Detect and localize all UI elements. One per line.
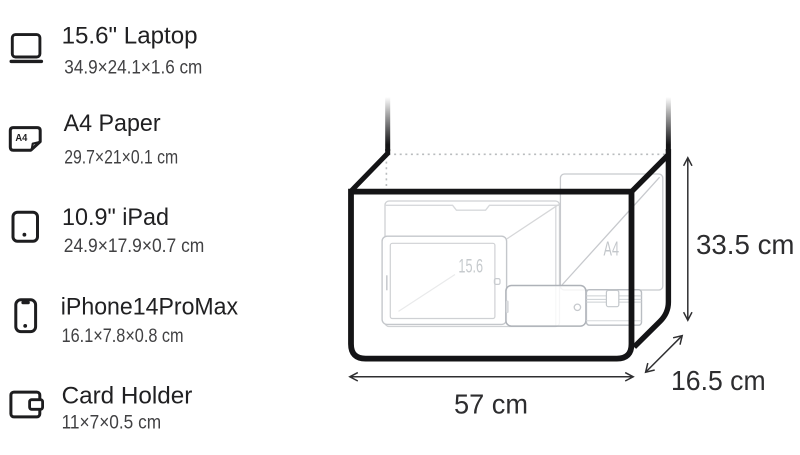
svg-text:iPhone14ProMax: iPhone14ProMax bbox=[61, 294, 238, 321]
svg-text:24.9×17.9×0.7 cm: 24.9×17.9×0.7 cm bbox=[64, 236, 205, 257]
svg-text:33.5 cm: 33.5 cm bbox=[696, 229, 795, 260]
svg-text:16.5 cm: 16.5 cm bbox=[671, 365, 766, 396]
svg-text:A4: A4 bbox=[15, 132, 27, 144]
svg-text:10.9" iPad: 10.9" iPad bbox=[62, 204, 169, 231]
svg-text:A4 Paper: A4 Paper bbox=[64, 110, 161, 137]
svg-text:57 cm: 57 cm bbox=[454, 389, 528, 420]
svg-text:29.7×21×0.1 cm: 29.7×21×0.1 cm bbox=[64, 147, 178, 168]
svg-text:11×7×0.5 cm: 11×7×0.5 cm bbox=[62, 413, 162, 434]
svg-text:15.6: 15.6 bbox=[458, 257, 483, 278]
svg-text:34.9×24.1×1.6 cm: 34.9×24.1×1.6 cm bbox=[64, 57, 202, 78]
svg-text:15.6" Laptop: 15.6" Laptop bbox=[62, 22, 198, 49]
svg-text:16.1×7.8×0.8 cm: 16.1×7.8×0.8 cm bbox=[62, 326, 184, 347]
svg-text:A4: A4 bbox=[604, 238, 620, 261]
svg-text:Card Holder: Card Holder bbox=[62, 382, 193, 409]
